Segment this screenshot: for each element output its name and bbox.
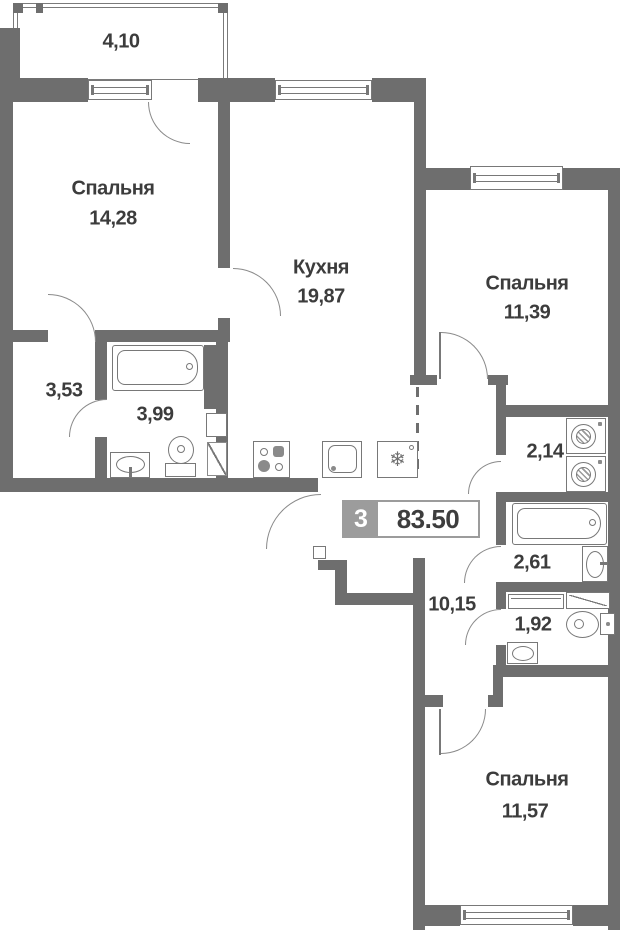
wall-top-right <box>563 168 612 190</box>
wall-laundry-bottom <box>496 492 608 502</box>
door-leaf-bedroom2 <box>439 332 441 379</box>
wall-bedroom2-bottom-stub <box>488 375 508 385</box>
wall-bathroom-left <box>95 342 107 400</box>
bedroom1-name-label: Спальня <box>72 178 155 201</box>
wall-bedroom2-bottom-stub <box>410 375 437 385</box>
wall-outer-left-top <box>0 28 20 84</box>
balcony-post <box>13 3 23 13</box>
window-kitchen <box>275 80 372 100</box>
door-leaf-bedroom3 <box>439 709 441 755</box>
shelf-icon <box>508 594 564 609</box>
wall-kitchen-bedroom2 <box>414 78 426 385</box>
total-area-value: 83.50 <box>378 502 478 536</box>
door-arc-bedroom3 <box>441 709 486 754</box>
bedroom1-area-label: 14,28 <box>89 208 137 231</box>
wall-top-right <box>426 168 470 190</box>
door-arc-bathroom <box>69 399 107 437</box>
toilet-icon <box>566 611 615 638</box>
wall-outer-left <box>0 78 13 492</box>
kitchen-name-label: Кухня <box>293 257 349 280</box>
wall-connector <box>493 677 503 707</box>
wall-wc-bottom <box>493 665 620 677</box>
wall-bedroom1-kitchen <box>218 98 230 268</box>
washing-machine-icon <box>566 456 606 492</box>
duct-shaft <box>204 345 228 409</box>
door-arc-entrance <box>266 494 321 549</box>
wall-bathroom-top <box>95 330 228 342</box>
hallway-area-label: 3,53 <box>46 380 83 403</box>
door-arc-bedroom1 <box>48 294 96 342</box>
wall-outer-left-lower <box>413 558 425 930</box>
window-bedroom3 <box>460 905 573 925</box>
corridor-area-label: 10,15 <box>428 594 476 617</box>
laundry-area-label: 2,14 <box>527 441 564 464</box>
niche <box>206 413 227 437</box>
wall-laundry-left <box>496 385 506 455</box>
bathroom2-area-label: 2,61 <box>514 552 551 575</box>
wall-bedroom3-top <box>413 695 443 707</box>
floor-plan: ❄ 4,10 Спальня 14,28 Кухня 19,87 <box>0 0 620 932</box>
wall-bathroom-left-stub <box>95 437 107 478</box>
wall-laundry-top <box>500 405 608 417</box>
wall-top <box>0 78 88 102</box>
bathtub-icon <box>112 345 204 391</box>
stove-icon <box>253 441 290 478</box>
door-arc-kitchen <box>233 268 281 316</box>
bedroom3-name-label: Спальня <box>486 769 569 792</box>
kitchen-area-label: 19,87 <box>297 286 345 309</box>
bedroom2-name-label: Спальня <box>486 273 569 296</box>
fridge-icon: ❄ <box>377 441 418 478</box>
balcony-post <box>36 3 43 13</box>
wall-bedroom1-bottom <box>0 330 48 342</box>
bathtub-icon <box>512 503 607 545</box>
bedroom2-area-label: 11,39 <box>504 302 550 325</box>
toilet-icon <box>165 436 196 478</box>
wall-wc-left <box>496 592 506 609</box>
cabinet-icon <box>566 592 610 609</box>
window-bedroom1 <box>88 80 152 100</box>
balcony-post <box>218 3 228 13</box>
wall-outer-bottom-left <box>0 478 318 492</box>
wall-entry-bottom <box>335 593 417 605</box>
bedroom3-area-label: 11,57 <box>502 801 548 824</box>
apartment-badge: 3 83.50 <box>342 500 480 538</box>
kitchen-sink-icon <box>322 441 362 478</box>
balcony-area-label: 4,10 <box>103 31 140 54</box>
sink-icon <box>110 452 150 478</box>
door-arc-bedroom2 <box>441 332 488 379</box>
washing-machine-icon <box>566 418 606 454</box>
door-arc-bath2 <box>464 546 501 583</box>
wall-top <box>198 78 275 102</box>
wall-outer-right <box>608 168 620 930</box>
window-bedroom2 <box>470 166 563 190</box>
bathroom-area-label: 3,99 <box>137 404 174 427</box>
door-arc-balcony <box>148 102 190 144</box>
wall-outer-bottom <box>573 905 620 926</box>
wc-area-label: 1,92 <box>515 614 552 637</box>
shaft-hatch <box>207 442 227 476</box>
door-arc-laundry <box>468 461 501 494</box>
sink-icon <box>507 642 538 664</box>
wall-bath2-wc-divider <box>496 582 608 592</box>
wall-bath2-left <box>496 502 506 545</box>
sink-icon <box>582 546 608 582</box>
rooms-count-badge: 3 <box>344 502 378 536</box>
